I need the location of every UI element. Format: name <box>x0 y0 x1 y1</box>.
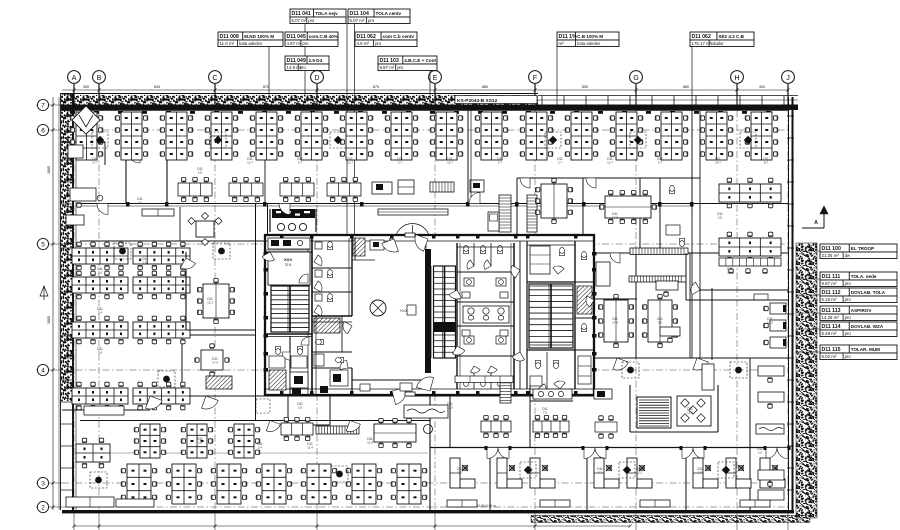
svg-text:2.8: 2.8 <box>718 216 723 220</box>
svg-text:300: 300 <box>83 85 89 89</box>
svg-text:875: 875 <box>373 85 379 89</box>
svg-text:12.2: 12.2 <box>527 471 533 475</box>
svg-text:com C.b centv: com C.b centv <box>383 34 415 39</box>
svg-text:12.3: 12.3 <box>207 301 213 305</box>
svg-text:edador: edador <box>711 41 725 46</box>
svg-text:D11 103: D11 103 <box>380 58 399 64</box>
svg-text:3885: 3885 <box>47 316 51 324</box>
svg-text:D11 041: D11 041 <box>292 11 311 17</box>
svg-text:5.18 m²: 5.18 m² <box>822 297 837 302</box>
svg-text:TOLAR. MUM: TOLAR. MUM <box>851 347 880 352</box>
svg-text:2.8: 2.8 <box>198 171 203 175</box>
svg-text:2.5: 2.5 <box>658 321 663 325</box>
svg-text:12.5: 12.5 <box>687 411 693 415</box>
svg-text:2.7: 2.7 <box>298 161 303 165</box>
svg-text:7: 7 <box>41 102 45 109</box>
svg-text:400: 400 <box>759 85 765 89</box>
svg-text:37.6: 37.6 <box>285 263 292 267</box>
svg-text:2.2: 2.2 <box>698 471 703 475</box>
svg-text:com.C.B 40%: com.C.B 40% <box>309 34 338 39</box>
svg-text:7.8: 7.8 <box>143 261 148 265</box>
svg-text:pro: pro <box>845 354 852 359</box>
svg-text:6.02 m²: 6.02 m² <box>822 354 837 359</box>
svg-text:D11 114: D11 114 <box>822 324 841 330</box>
svg-text:3: 3 <box>41 480 45 487</box>
svg-text:4.9 m²: 4.9 m² <box>357 41 370 46</box>
svg-text:KS-P2043-B XS12: KS-P2043-B XS12 <box>457 98 498 104</box>
svg-text:12.8: 12.8 <box>367 441 373 445</box>
svg-text:D11 111: D11 111 <box>822 274 841 280</box>
svg-text:D11 008: D11 008 <box>220 34 239 40</box>
svg-text:D11 100: D11 100 <box>822 246 841 252</box>
svg-text:8.7: 8.7 <box>764 161 769 165</box>
svg-text:12.7: 12.7 <box>347 161 353 165</box>
svg-text:DOVLAB. TOLA: DOVLAB. TOLA <box>851 290 886 295</box>
svg-text:2.2: 2.2 <box>638 471 643 475</box>
svg-text:D11 045: D11 045 <box>287 34 306 40</box>
svg-text:2.0: 2.0 <box>98 271 103 275</box>
svg-text:D11 115: D11 115 <box>822 347 841 353</box>
svg-text:2.8: 2.8 <box>198 441 203 445</box>
svg-text:F: F <box>533 73 538 82</box>
svg-text:20.7: 20.7 <box>715 161 721 165</box>
svg-text:21.35 m²: 21.35 m² <box>822 253 840 258</box>
svg-text:D11 112: D11 112 <box>822 290 841 296</box>
svg-text:M.ND 100% M: M.ND 100% M <box>244 34 274 39</box>
svg-text:D11 104: D11 104 <box>350 11 369 17</box>
svg-text:EL TROOP: EL TROOP <box>851 246 874 251</box>
svg-text:845: 845 <box>154 85 160 89</box>
svg-text:pro: pro <box>308 18 315 23</box>
svg-text:DOVLAB. WZA: DOVLAB. WZA <box>851 324 884 329</box>
svg-text:XXX: XXX <box>284 257 292 262</box>
svg-text:B: B <box>97 73 102 82</box>
svg-text:12.0: 12.0 <box>727 271 733 275</box>
svg-text:D11 062: D11 062 <box>357 34 376 40</box>
svg-text:12.4: 12.4 <box>307 446 313 450</box>
svg-text:2.7: 2.7 <box>398 161 403 165</box>
svg-text:3885: 3885 <box>47 166 51 174</box>
svg-text:pro: pro <box>368 18 375 23</box>
svg-text:pro: pro <box>845 315 852 320</box>
svg-text:2.4: 2.4 <box>258 446 263 450</box>
svg-text:2.0: 2.0 <box>758 451 763 455</box>
svg-text:D11 049: D11 049 <box>287 58 306 64</box>
svg-text:2.7: 2.7 <box>558 161 563 165</box>
svg-text:17.7: 17.7 <box>92 161 98 165</box>
svg-text:12.0: 12.0 <box>447 406 453 410</box>
svg-text:12.7: 12.7 <box>607 161 613 165</box>
svg-text:bata adeden: bata adeden <box>577 41 601 46</box>
svg-text:A: A <box>814 220 818 226</box>
svg-text:5: 5 <box>41 241 45 248</box>
svg-text:D11 1%: D11 1% <box>559 34 578 40</box>
svg-text:880: 880 <box>482 85 488 89</box>
svg-text:C.B 100% M: C.B 100% M <box>577 34 603 39</box>
svg-text:2.7: 2.7 <box>498 161 503 165</box>
svg-text:2.0: 2.0 <box>298 406 303 410</box>
svg-text:4.97 m²: 4.97 m² <box>287 41 302 46</box>
svg-text:880: 880 <box>683 85 689 89</box>
svg-text:pro: pro <box>375 41 382 46</box>
svg-text:2.7: 2.7 <box>658 161 663 165</box>
svg-text:2.2: 2.2 <box>458 471 463 475</box>
svg-text:G: G <box>633 73 639 82</box>
svg-text:2.4: 2.4 <box>98 311 103 315</box>
svg-text:pro: pro <box>845 281 852 286</box>
svg-text:D11 113: D11 113 <box>822 308 841 314</box>
svg-text:5.07 m²: 5.07 m² <box>350 18 365 23</box>
svg-text:2.9 D4: 2.9 D4 <box>309 58 323 63</box>
svg-text:pro: pro <box>302 41 309 46</box>
svg-text:175.17 m²: 175.17 m² <box>692 41 712 46</box>
svg-text:4.B.C.E + Cont: 4.B.C.E + Cont <box>404 58 436 63</box>
svg-text:SE2 4.3 C.B: SE2 4.3 C.B <box>718 34 744 39</box>
svg-text:850: 850 <box>582 85 588 89</box>
svg-text:11.0 m²: 11.0 m² <box>220 41 235 46</box>
svg-text:2.2: 2.2 <box>598 471 603 475</box>
svg-text:E: E <box>433 73 438 82</box>
svg-text:9.87 m²: 9.87 m² <box>380 65 395 70</box>
svg-text:A: A <box>72 73 77 82</box>
svg-text:J: J <box>786 73 790 82</box>
svg-text:C: C <box>212 73 217 82</box>
svg-text:2.8: 2.8 <box>98 351 103 355</box>
svg-text:17.0: 17.0 <box>212 361 218 365</box>
svg-text:17.8: 17.8 <box>612 216 618 220</box>
svg-text:pro: pro <box>845 331 852 336</box>
svg-text:bata adeden: bata adeden <box>239 41 263 46</box>
svg-text:D11 062: D11 062 <box>692 34 711 40</box>
svg-text:17.5: 17.5 <box>612 321 618 325</box>
svg-text:TOLA nejv: TOLA nejv <box>315 11 338 16</box>
svg-text:5.48 m²: 5.48 m² <box>822 331 837 336</box>
svg-text:12.7: 12.7 <box>247 161 253 165</box>
svg-text:H: H <box>734 73 739 82</box>
svg-text:ASPIROV: ASPIROV <box>851 308 873 313</box>
svg-text:7.5: 7.5 <box>543 411 548 415</box>
svg-text:870: 870 <box>263 85 269 89</box>
svg-text:D: D <box>314 73 319 82</box>
svg-text:6: 6 <box>41 127 45 134</box>
svg-text:pro: pro <box>845 297 852 302</box>
svg-text:9.87 m²: 9.87 m² <box>822 281 837 286</box>
svg-text:m²: m² <box>559 41 565 46</box>
svg-text:2.2: 2.2 <box>138 201 143 205</box>
svg-text:5.07 m²: 5.07 m² <box>292 18 307 23</box>
svg-text:TOLA centv: TOLA centv <box>376 11 402 16</box>
svg-text:12.5: 12.5 <box>767 321 773 325</box>
svg-text:12.7: 12.7 <box>447 161 453 165</box>
svg-text:TOLA. nede: TOLA. nede <box>851 274 877 279</box>
svg-text:2: 2 <box>41 504 45 511</box>
svg-text:4: 4 <box>41 367 45 374</box>
svg-text:pro: pro <box>397 65 404 70</box>
svg-text:14.28 m²: 14.28 m² <box>822 315 840 320</box>
svg-text:pro: pro <box>300 65 307 70</box>
